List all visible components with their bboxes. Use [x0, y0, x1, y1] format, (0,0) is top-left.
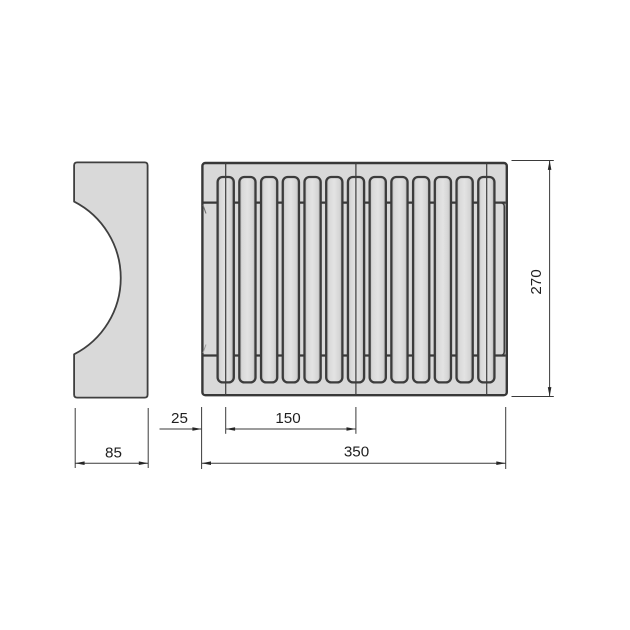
svg-text:25: 25	[171, 410, 188, 427]
svg-text:85: 85	[105, 444, 122, 461]
svg-text:150: 150	[275, 410, 300, 427]
svg-text:270: 270	[528, 269, 545, 294]
svg-text:350: 350	[344, 444, 369, 461]
